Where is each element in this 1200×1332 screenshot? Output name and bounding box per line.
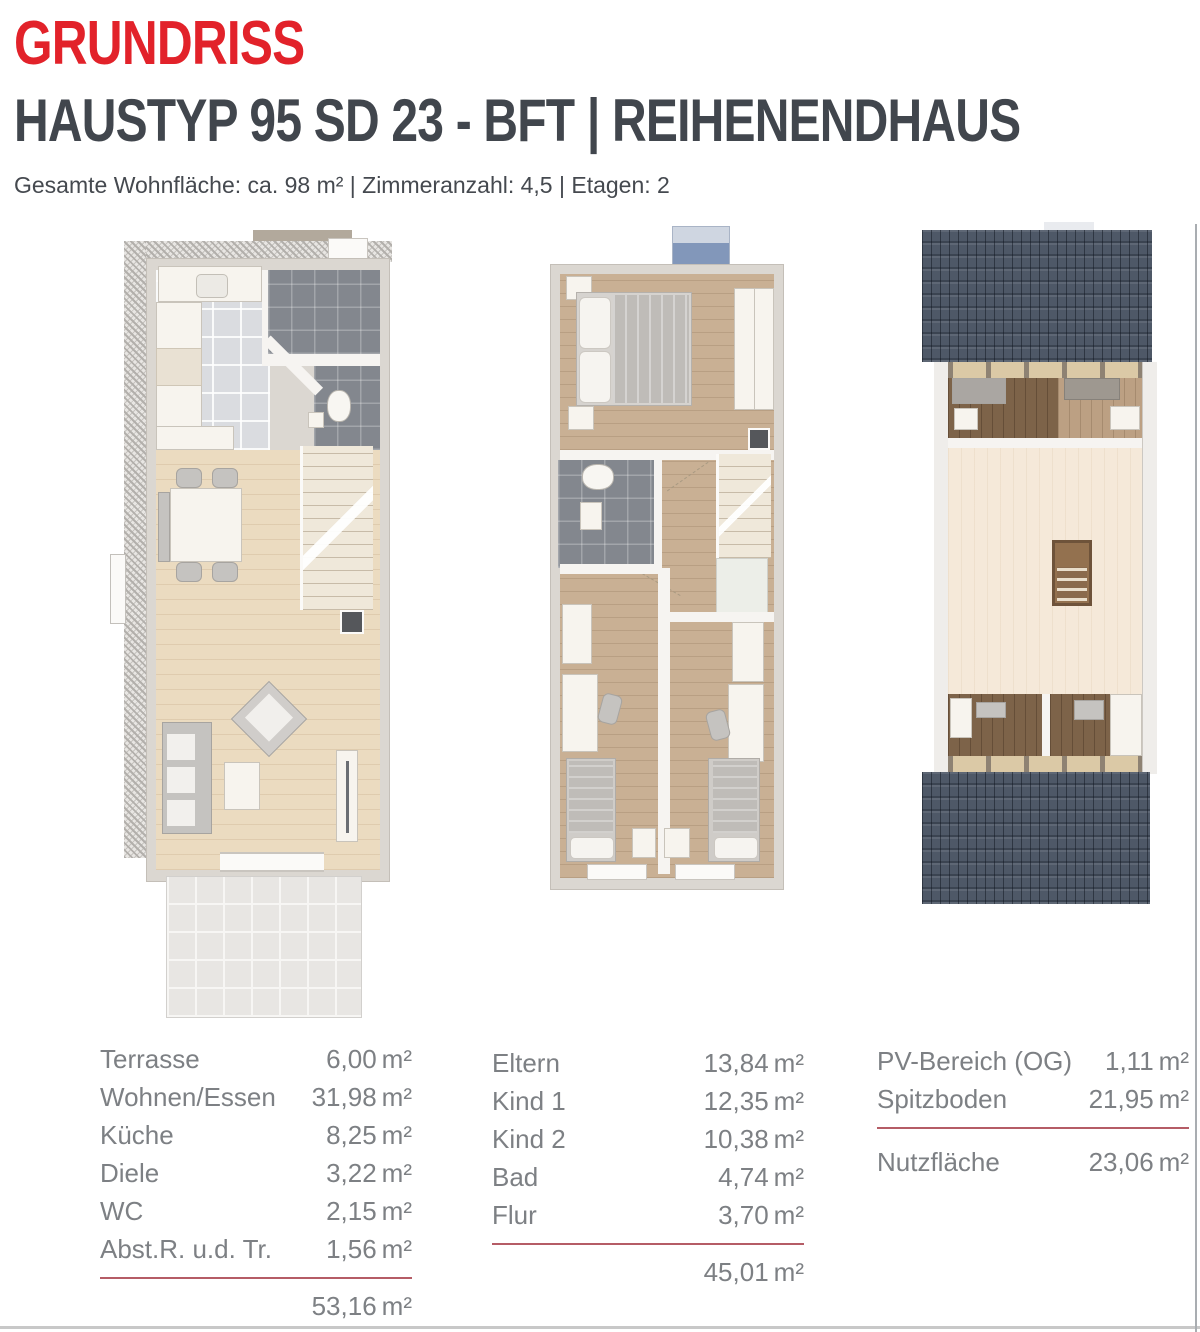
staircase-og <box>716 454 771 558</box>
area-row: Diele 3,22m² <box>100 1158 412 1196</box>
pillow <box>579 297 611 349</box>
room-area: 3,22m² <box>326 1158 412 1189</box>
area-row: Spitzboden 21,95m² <box>877 1084 1189 1122</box>
bed-kind1 <box>566 758 616 862</box>
area-row: Kind 1 12,35m² <box>492 1086 804 1124</box>
grundriss-sheet: GRUNDRISS HAUSTYP 95 SD 23 - BFT | REIHE… <box>0 0 1200 1332</box>
bottom-divider <box>0 1326 1200 1329</box>
desk-kind1 <box>562 674 598 752</box>
knee-wall-top <box>948 438 1142 448</box>
wc-sink <box>308 412 324 428</box>
desk-kind2 <box>728 684 764 762</box>
wall-between-rooms <box>1042 694 1050 756</box>
total-area: 23,06m² <box>1089 1147 1189 1178</box>
exterior-wall-hatch-left <box>124 241 146 858</box>
area-row: Terrasse 6,00m² <box>100 1044 412 1082</box>
area-table-dachgeschoss: PV-Bereich (OG) 1,11m² Spitzboden 21,95m… <box>877 1046 1189 1178</box>
cabinet <box>1110 406 1140 430</box>
wardrobe-eltern <box>734 288 774 410</box>
hatch-ladder-steps <box>1057 567 1087 601</box>
diele-floor <box>268 270 380 354</box>
area-row: Abst.R. u.d. Tr. 1,56m² <box>100 1234 412 1272</box>
window-sill-left <box>110 554 126 624</box>
bed-seen-from-above <box>952 378 1006 404</box>
wardrobe-kind1 <box>562 604 592 664</box>
dining-chair <box>176 468 202 488</box>
dining-chair <box>212 562 238 582</box>
duct-shaft <box>340 610 364 634</box>
area-total-row: Nutzfläche 23,06m² <box>877 1147 1189 1178</box>
bed-kind2 <box>708 758 760 862</box>
total-label: Nutzfläche <box>877 1147 1000 1178</box>
room-label: Spitzboden <box>877 1084 1007 1115</box>
wardrobe-door-line <box>754 289 755 409</box>
room-label: Bad <box>492 1162 538 1193</box>
area-row: Wohnen/Essen 31,98m² <box>100 1082 412 1120</box>
dresser <box>954 408 978 430</box>
wc-toilet <box>327 390 351 422</box>
room-area: 3,70m² <box>718 1200 804 1231</box>
window-opening <box>587 864 647 880</box>
bad-toilet <box>582 464 614 490</box>
room-label: PV-Bereich (OG) <box>877 1046 1072 1077</box>
desk-seen-from-above <box>1074 700 1104 720</box>
cabinet <box>950 698 972 738</box>
tv-screen <box>346 761 349 833</box>
duct-shaft <box>748 428 770 450</box>
pillow <box>570 837 614 859</box>
sofa-cushions <box>167 728 195 826</box>
area-row: Flur 3,70m² <box>492 1200 804 1238</box>
sum-rule <box>877 1127 1189 1129</box>
area-total-row: 53,16m² <box>100 1291 412 1322</box>
desk-seen-from-above <box>976 702 1006 718</box>
room-label: Flur <box>492 1200 537 1231</box>
room-label: Kind 2 <box>492 1124 566 1155</box>
room-area: 21,95m² <box>1089 1084 1189 1115</box>
pillow <box>714 837 758 859</box>
pillow <box>579 351 611 403</box>
room-area: 8,25m² <box>326 1120 412 1151</box>
tv-sideboard <box>336 750 358 842</box>
terrace-door-opening <box>220 852 324 872</box>
dining-bench <box>158 492 170 562</box>
roof-surface-top <box>922 230 1152 362</box>
wardrobe-kind2 <box>732 622 764 682</box>
floorplan-obergeschoss <box>545 224 789 896</box>
wardrobe-bottom-right <box>1110 694 1142 756</box>
spitzboden-floor <box>948 448 1142 694</box>
kitchen-counter-bottom <box>156 426 234 450</box>
page-meta: Gesamte Wohnfläche: ca. 98 m² | Zimmeran… <box>14 172 670 199</box>
area-row: Küche 8,25m² <box>100 1120 412 1158</box>
staircase-winder-line <box>303 446 373 610</box>
window-opening <box>675 864 735 880</box>
duvet <box>613 295 689 403</box>
dining-chair <box>176 562 202 582</box>
room-label: Diele <box>100 1158 159 1189</box>
total-area: 45,01m² <box>704 1257 804 1288</box>
room-label: Abst.R. u.d. Tr. <box>100 1234 272 1265</box>
armchair-cushion <box>245 694 293 742</box>
room-label: Terrasse <box>100 1044 200 1075</box>
staircase-eg <box>300 446 373 610</box>
double-bed <box>576 292 692 406</box>
room-area: 2,15m² <box>326 1196 412 1227</box>
sum-rule <box>100 1277 412 1279</box>
room-label: WC <box>100 1196 143 1227</box>
dining-chair <box>212 468 238 488</box>
nightstand-kind2 <box>664 828 690 858</box>
area-row: PV-Bereich (OG) 1,11m² <box>877 1046 1189 1084</box>
room-label: Küche <box>100 1120 174 1151</box>
room-area: 1,56m² <box>326 1234 412 1265</box>
bad-sink <box>580 502 602 530</box>
area-row: Bad 4,74m² <box>492 1162 804 1200</box>
total-area: 53,16m² <box>312 1291 412 1322</box>
stair-hatch-opening <box>1052 540 1092 606</box>
nightstand-kind1 <box>632 828 656 858</box>
room-area: 12,35m² <box>704 1086 804 1117</box>
roof-surface-bottom <box>922 772 1150 904</box>
wall-bad-flur <box>654 460 662 568</box>
nightstand <box>568 406 594 430</box>
room-label: Kind 1 <box>492 1086 566 1117</box>
stair-landing <box>716 558 768 614</box>
kitchen-sink <box>196 274 228 298</box>
room-area: 31,98m² <box>312 1082 412 1113</box>
sum-rule <box>492 1243 804 1245</box>
area-row: Kind 2 10,38m² <box>492 1124 804 1162</box>
rafter-ends-top <box>948 362 1142 378</box>
staircase-winder-line <box>719 454 771 558</box>
coffee-table <box>224 762 260 810</box>
area-row: Eltern 13,84m² <box>492 1048 804 1086</box>
room-area: 6,00m² <box>326 1044 412 1075</box>
duvet <box>569 761 613 833</box>
sofa <box>162 722 212 834</box>
floorplan-erdgeschoss <box>110 228 392 1020</box>
room-label: Wohnen/Essen <box>100 1082 276 1113</box>
wall-flur-kind1 <box>560 564 658 574</box>
room-area: 13,84m² <box>704 1048 804 1079</box>
room-area: 4,74m² <box>718 1162 804 1193</box>
area-table-erdgeschoss: Terrasse 6,00m² Wohnen/Essen 31,98m² Küc… <box>100 1044 412 1322</box>
wall-flur-kind2 <box>670 612 774 622</box>
wardrobe-seen-from-above <box>1064 378 1120 400</box>
room-area: 1,11m² <box>1105 1046 1189 1077</box>
area-row: WC 2,15m² <box>100 1196 412 1234</box>
area-total-row: 45,01m² <box>492 1257 804 1288</box>
room-label: Eltern <box>492 1048 560 1079</box>
rafter-ends-bottom <box>948 756 1142 772</box>
gable-wall-right <box>1142 362 1157 774</box>
page-title: HAUSTYP 95 SD 23 - BFT | REIHENENDHAUS <box>14 86 1020 155</box>
gable-wall-left <box>934 362 949 774</box>
area-table-obergeschoss: Eltern 13,84m² Kind 1 12,35m² Kind 2 10,… <box>492 1048 804 1288</box>
kitchen-appliance <box>156 348 202 386</box>
terrasse <box>166 876 362 1018</box>
duvet <box>713 761 757 833</box>
room-area: 10,38m² <box>704 1124 804 1155</box>
right-divider <box>1195 224 1197 1332</box>
floorplan-spitzboden <box>918 222 1154 906</box>
skylight-window <box>672 226 730 266</box>
page-eyebrow: GRUNDRISS <box>14 8 304 79</box>
dining-table <box>170 488 242 562</box>
